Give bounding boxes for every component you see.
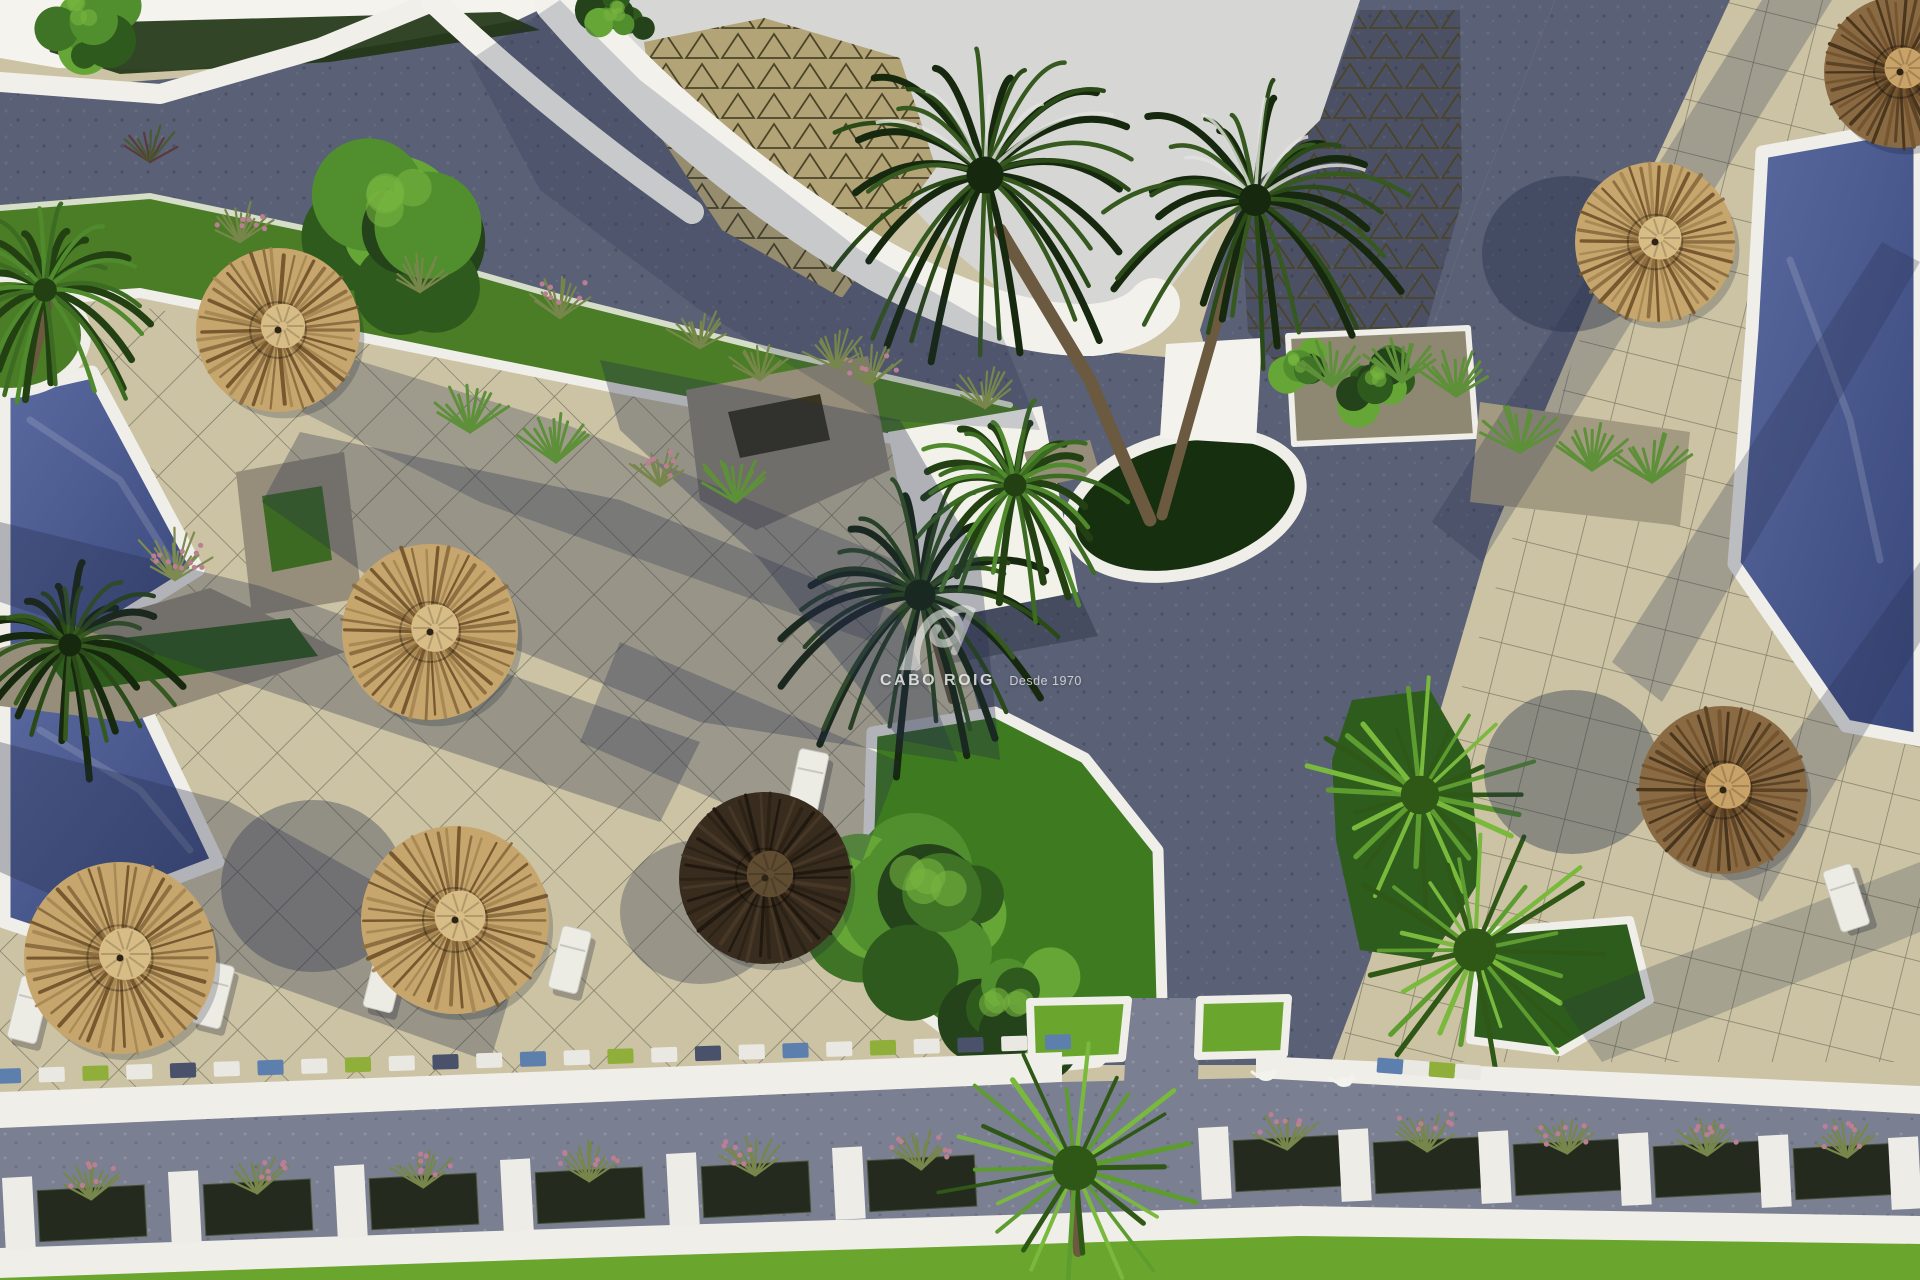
curb-block [1402,1060,1429,1077]
aerial-render-canvas [0,0,1920,1280]
umbrella-thatch [681,878,753,879]
palm-crown-center [59,634,82,657]
cast-shadow [1484,690,1660,854]
flower-dot [645,461,650,466]
curb-block [1454,1064,1481,1081]
flower-dot [172,564,177,569]
planter-post [832,1146,866,1219]
flower-dot [668,449,673,454]
umbrella-pole [1652,239,1659,246]
flower-dot [166,559,171,564]
flower-dot [582,280,587,285]
tree-foliage [632,17,655,40]
tree-highlight [906,868,942,904]
flower-dot [199,565,204,570]
junction-lawn-right [1198,998,1288,1056]
planter-post [1198,1126,1232,1199]
curb-block [432,1054,458,1070]
flower-dot [556,300,561,305]
curb-block [1428,1062,1455,1079]
flower-dot [260,214,265,219]
curb-block [695,1045,721,1061]
curb-block [82,1065,108,1081]
curb-block [126,1064,152,1080]
flower-dot [847,370,852,375]
planter-post [2,1176,36,1249]
umbrella-thatch [363,920,442,921]
umbrella-pole [275,327,282,334]
curb-block [520,1051,546,1067]
flower-dot [577,296,582,301]
curb-block [739,1044,765,1060]
flower-dot [239,223,244,228]
curb-block [214,1061,240,1077]
bird-head [1271,1069,1277,1075]
curb-block [39,1067,65,1083]
curb-block [607,1048,633,1064]
flower-dot [262,226,267,231]
flower-dot [192,565,197,570]
curb-block [564,1050,590,1066]
tree-highlight [70,9,87,26]
palm-crown-center [1053,1146,1098,1191]
curb-block [257,1060,283,1076]
curb-block [301,1058,327,1074]
flower-dot [664,463,669,468]
palm-crown-center [33,278,57,302]
curb-block [389,1055,415,1071]
umbrella-pole [427,629,434,636]
flower-dot [215,222,220,227]
curb-block [476,1052,502,1068]
curb-block [1001,1035,1027,1051]
aerial-resort-render: CABO ROIG Desde 1970 [0,0,1920,1280]
flower-dot [540,281,545,286]
planter-post [334,1164,368,1237]
junction-path-texture [1124,998,1200,1084]
flower-dot [179,565,184,570]
planter-post [1888,1136,1920,1209]
planter-post [1478,1130,1512,1203]
curb-block [870,1040,896,1056]
bird-head [1349,1075,1355,1081]
curb-block [826,1041,852,1057]
flower-dot [884,353,889,358]
curb-block [1376,1058,1403,1075]
tree-highlight [604,8,617,21]
flower-dot [154,558,159,563]
palm-crown-center [967,157,1004,194]
curb-block [957,1037,983,1053]
flower-dot [240,217,245,222]
flower-dot [894,367,899,372]
umbrella-thatch [202,330,267,332]
flower-dot [254,222,259,227]
flower-dot [543,291,548,296]
umbrella-thatch [345,630,418,632]
umbrella-pole [452,917,459,924]
flower-dot [194,550,199,555]
curb-block [1045,1034,1071,1050]
umbrella-thatch [1581,241,1644,242]
flower-dot [151,553,156,558]
curb-block [170,1062,196,1078]
flower-dot [548,295,553,300]
umbrella-pole [1720,787,1727,794]
curb-block [651,1047,677,1063]
umbrella-pole [1897,69,1904,76]
palm-crown-center [1004,474,1027,497]
tree-highlight [979,991,1005,1017]
planter-post [1338,1128,1372,1201]
planter-post [168,1170,202,1243]
flower-dot [548,285,553,290]
curb-block [782,1043,808,1059]
flower-dot [180,549,185,554]
planter-post [1618,1132,1652,1205]
palm-crown-center [1401,776,1439,814]
flower-dot [198,543,203,548]
flower-dot [247,217,252,222]
palm-crown-center [1239,184,1271,216]
umbrella-pole [762,875,769,882]
tree-highlight [367,173,405,211]
flower-dot [188,560,193,565]
umbrella-pole [117,955,124,962]
flower-dot [671,458,676,463]
planter-post [1758,1134,1792,1207]
planter-post [500,1158,534,1231]
planter-post [666,1152,700,1225]
curb-block [345,1057,371,1073]
flower-dot [157,552,162,557]
curb-block [914,1038,940,1054]
palm-crown-center [1453,928,1496,971]
flower-dot [863,367,868,372]
curb-block [0,1068,21,1084]
flower-dot [668,473,673,478]
